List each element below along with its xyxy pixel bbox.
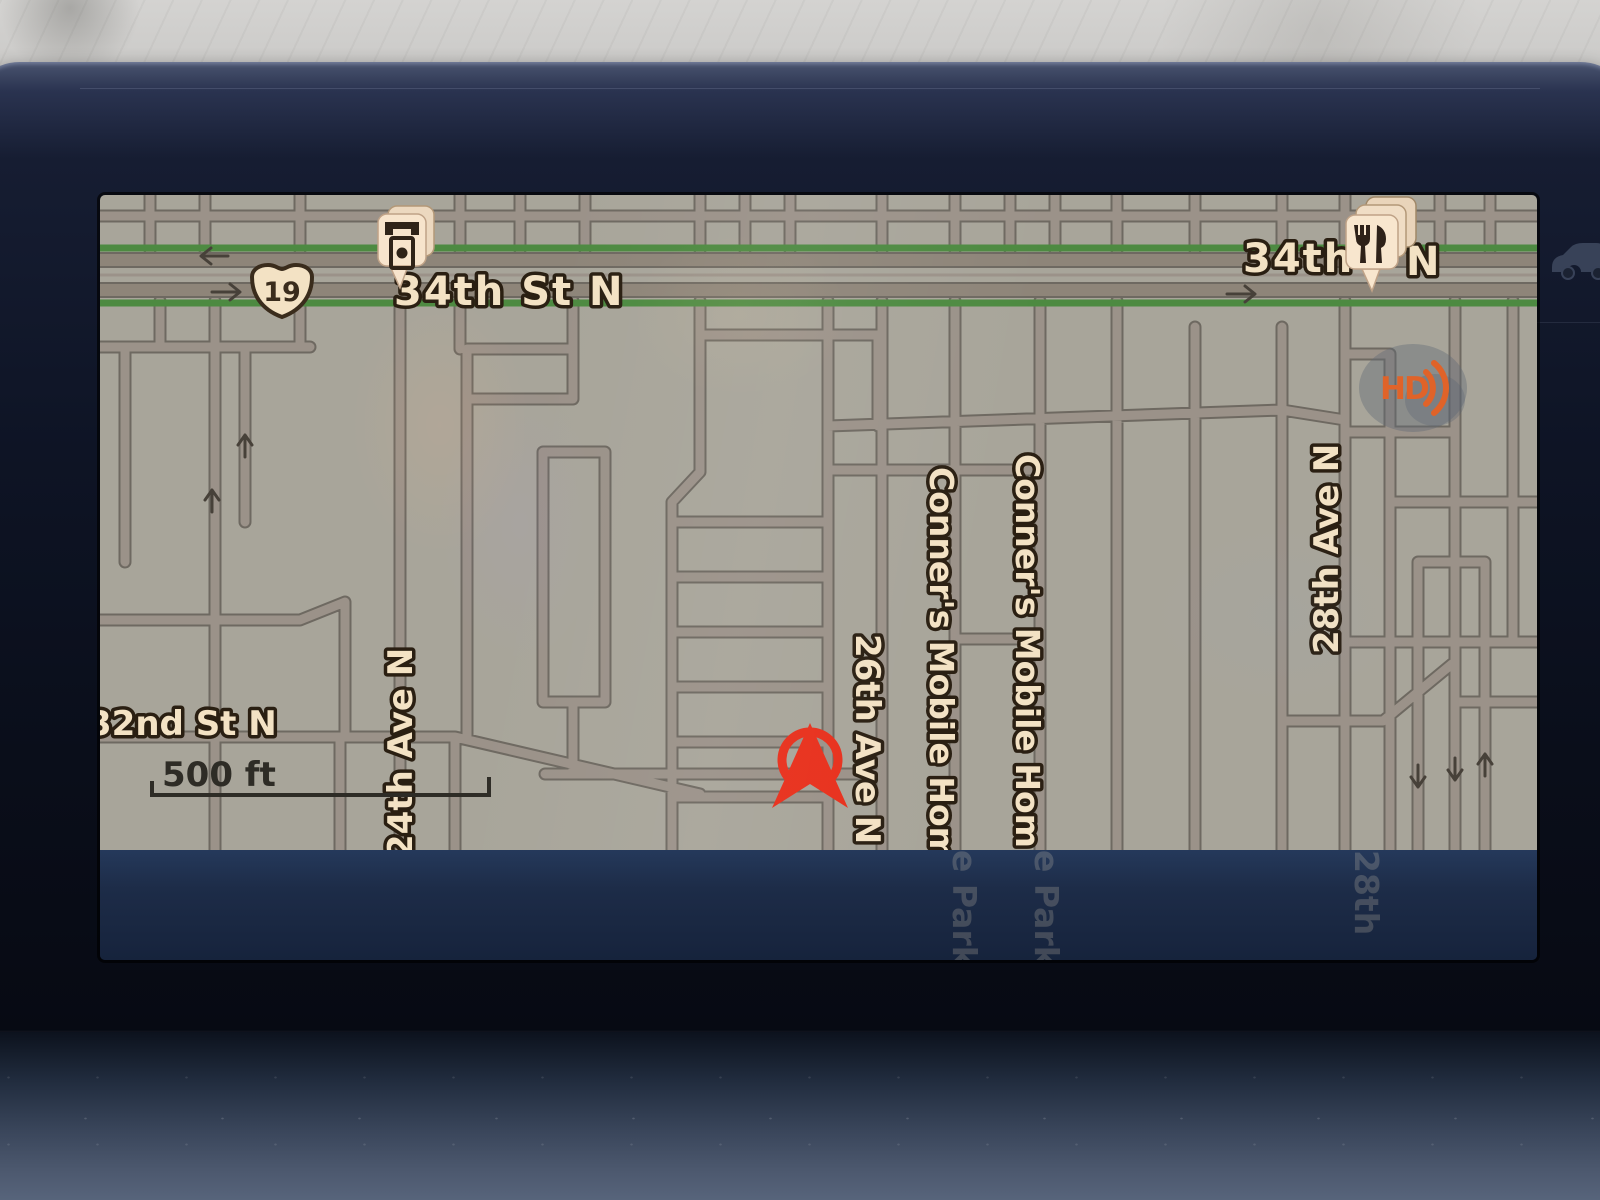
car-icon — [1546, 236, 1600, 282]
scale-label: 500 ft — [162, 755, 276, 795]
street-label-32nd-st-n: 32nd St N — [100, 704, 277, 744]
street-label-26th-ave-n: 26th Ave N — [847, 634, 887, 844]
hd-icon-label: HD — [1380, 371, 1429, 407]
street-label-28th-ave-n: 28th Ave N — [1307, 444, 1347, 654]
map-view[interactable]: 19 34th St N 34th N 32nd St N 24th Ave N… — [100, 195, 1537, 850]
street-label-24th-ave-n: 24th Ave N — [381, 648, 421, 850]
street-label-34th-st-n-left: 34th St N — [394, 269, 625, 315]
hd-traffic-icon: HD — [1359, 344, 1467, 432]
dashboard-surface — [0, 1032, 1600, 1200]
map-canvas[interactable]: 19 34th St N 34th N 32nd St N 24th Ave N… — [100, 195, 1537, 850]
ghost-label-28th: 28th — [1347, 850, 1386, 935]
ghost-label-e-park-2: e Park — [1027, 850, 1066, 960]
bezel-edge-highlight — [80, 88, 1540, 89]
label-conners-mobile-home-2: Conner's Mobile Hom — [1008, 454, 1047, 848]
bezel-seam — [1537, 322, 1600, 323]
navigation-screen: 19 34th St N 34th N 32nd St N 24th Ave N… — [100, 195, 1537, 960]
route-number: 19 — [263, 277, 301, 308]
label-conners-mobile-home-1: Conner's Mobile Hom — [922, 467, 961, 850]
ghost-label-e-park-1: e Park — [945, 850, 984, 960]
screen-lower-band: e Park e Park 28th — [100, 850, 1537, 960]
dashboard-photo: 19 34th St N 34th N 32nd St N 24th Ave N… — [0, 0, 1600, 1200]
street-label-34th-right: 34th — [1243, 236, 1354, 282]
map-scale: 500 ft — [152, 755, 489, 795]
